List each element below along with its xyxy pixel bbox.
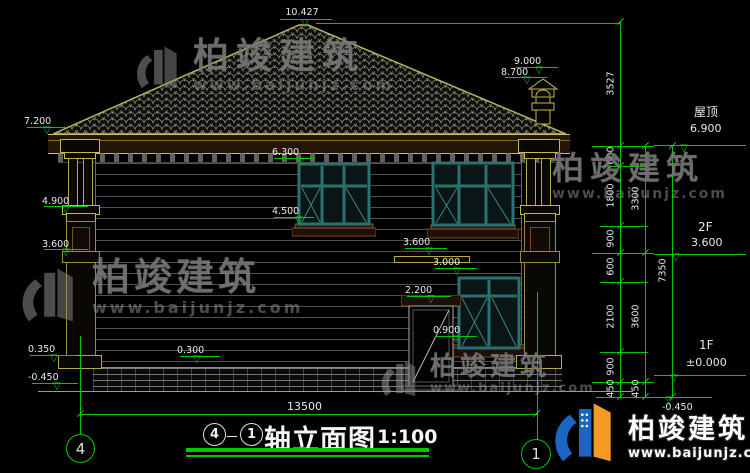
- floor1-label: 1F: [699, 338, 714, 352]
- elevation-triangle: ▽: [666, 374, 682, 383]
- cad-elevation-drawing: 10.427 ▽ 9.000 ▽ 8.700 ▽ 7.200 ▽ 6.300 ▽…: [0, 0, 750, 473]
- title-underline-thin: [186, 455, 429, 457]
- dim-line: [654, 145, 746, 146]
- elevation-triangle: ▽: [423, 295, 439, 304]
- left-column-shaft-b: [83, 158, 93, 207]
- elevation-triangle: ▽: [189, 355, 205, 364]
- level-roof: 6.900: [690, 122, 722, 135]
- dim-text: 600: [606, 134, 617, 178]
- right-column-capital: [518, 139, 560, 153]
- axis-number: 1: [531, 445, 541, 463]
- title-dash: －: [225, 427, 239, 447]
- elevation-triangle: ▽: [39, 126, 55, 135]
- level-band-left: 3.600: [42, 239, 69, 250]
- title-axis-from: 4: [203, 423, 226, 446]
- level-band-mid: 3.600: [403, 237, 430, 248]
- right-column-base: [516, 355, 562, 369]
- elevation-triangle: ▽: [46, 354, 62, 363]
- left-column-capital: [60, 139, 100, 153]
- dim-chain-c: [672, 146, 673, 397]
- level-f1: ±0.000: [686, 356, 727, 369]
- dim-text: 1800: [606, 174, 617, 218]
- level-capital: 4.900: [42, 196, 69, 207]
- right-column-band: [520, 251, 560, 263]
- title-underline-thick: [186, 448, 429, 452]
- level-win2-top: 6.300: [272, 147, 299, 158]
- axis-centerline-left: [80, 336, 81, 434]
- window-1f: [449, 276, 529, 360]
- level-apex: 10.427: [276, 7, 328, 18]
- level-door-top: 2.200: [405, 285, 432, 296]
- level-eave: 7.200: [24, 116, 51, 127]
- dim-text: 3527: [606, 62, 617, 106]
- axis-bubble-left: 4: [66, 434, 95, 463]
- title-axis-to: 1: [240, 423, 263, 446]
- level-ground-right: -0.450: [662, 402, 693, 413]
- axis-centerline-right: [537, 292, 538, 440]
- extension-line: [316, 23, 620, 24]
- level-base-mid: 0.300: [177, 345, 204, 356]
- dim-text: 450: [606, 367, 617, 411]
- elevation-triangle: ▽: [676, 144, 692, 153]
- dim-text: 7350: [658, 249, 669, 293]
- level-ground-left: -0.450: [28, 372, 59, 383]
- roof-outline: [53, 25, 566, 134]
- elevation-triangle: ▽: [448, 335, 464, 344]
- level-f2: 3.600: [691, 236, 723, 249]
- dim-text: 600: [606, 245, 617, 289]
- elevation-triangle: ▽: [421, 247, 437, 256]
- floor2-label: 2F: [698, 220, 713, 234]
- left-column-shaft-a: [68, 158, 78, 207]
- axis-bubble-right: 1: [521, 439, 551, 469]
- right-column-shaft-b: [541, 158, 551, 207]
- elevation-triangle: ▽: [293, 157, 309, 166]
- window-2f-left: [292, 162, 376, 238]
- overall-dim-line: [80, 414, 537, 415]
- drawing-scale: 1:100: [377, 426, 437, 448]
- level-win1-sill: 0.900: [433, 325, 460, 336]
- dim-text: 2100: [606, 295, 617, 339]
- level-win2-sill: 4.500: [272, 206, 299, 217]
- elevation-triangle: ▽: [297, 19, 313, 28]
- dim-chain-a: [620, 22, 621, 397]
- elevation-triangle: ▽: [49, 382, 65, 391]
- dim-chain-b: [645, 146, 646, 397]
- level-chimney-cap: 8.700: [501, 67, 528, 78]
- eave-fascia: [48, 134, 570, 154]
- dim-text: 450: [631, 367, 642, 411]
- chimney: [529, 79, 557, 124]
- level-win1-top: 3.000: [433, 257, 460, 268]
- axis-number: 4: [76, 440, 86, 458]
- elevation-triangle: ▽: [668, 253, 684, 262]
- level-plinth: 0.350: [28, 344, 55, 355]
- right-column-shaft-a: [526, 158, 536, 207]
- dim-line: [648, 397, 712, 398]
- overall-dim-text: 13500: [287, 400, 322, 413]
- level-chimney-top: 9.000: [514, 56, 541, 67]
- dim-text: 3300: [631, 177, 642, 221]
- roof-label: 屋顶: [694, 103, 718, 120]
- elevation-triangle: ▽: [291, 216, 307, 225]
- window-2f-right: [427, 161, 519, 240]
- dim-text: 3600: [631, 295, 642, 339]
- elevation-triangle: ▽: [449, 267, 465, 276]
- elevation-triangle: ▽: [531, 66, 547, 75]
